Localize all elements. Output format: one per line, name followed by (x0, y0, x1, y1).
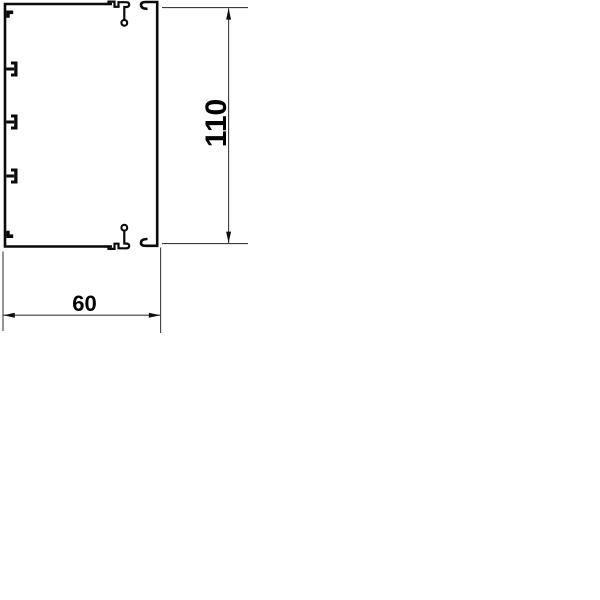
technical-drawing-canvas: 110 60 (0, 0, 600, 600)
base-t-tab-2 (6, 115, 17, 130)
trunking-base-profile (5, 2, 129, 249)
base-top-clip-tab (6, 11, 13, 18)
cover-wall-with-return-lips (141, 2, 157, 246)
dimension-width-60: 60 (3, 248, 161, 334)
arrowhead-up-icon (226, 8, 231, 19)
base-bottom-clip-tab (6, 231, 13, 238)
trunking-cross-section-drawing: 110 60 (0, 0, 600, 600)
hook-foot-ball-top (121, 20, 127, 26)
dimension-label-height: 110 (200, 99, 233, 147)
base-t-tab-3 (6, 169, 17, 184)
base-t-tab-1 (6, 62, 17, 77)
arrowhead-down-icon (226, 232, 231, 243)
arrowhead-left-icon (3, 313, 14, 318)
base-channel-walls (5, 4, 112, 247)
arrowhead-right-icon (149, 313, 160, 318)
dimension-height-110: 110 (162, 8, 248, 244)
hook-foot-ball-bottom (121, 225, 127, 231)
dimension-label-width: 60 (72, 291, 96, 316)
trunking-cover-profile (141, 2, 157, 246)
